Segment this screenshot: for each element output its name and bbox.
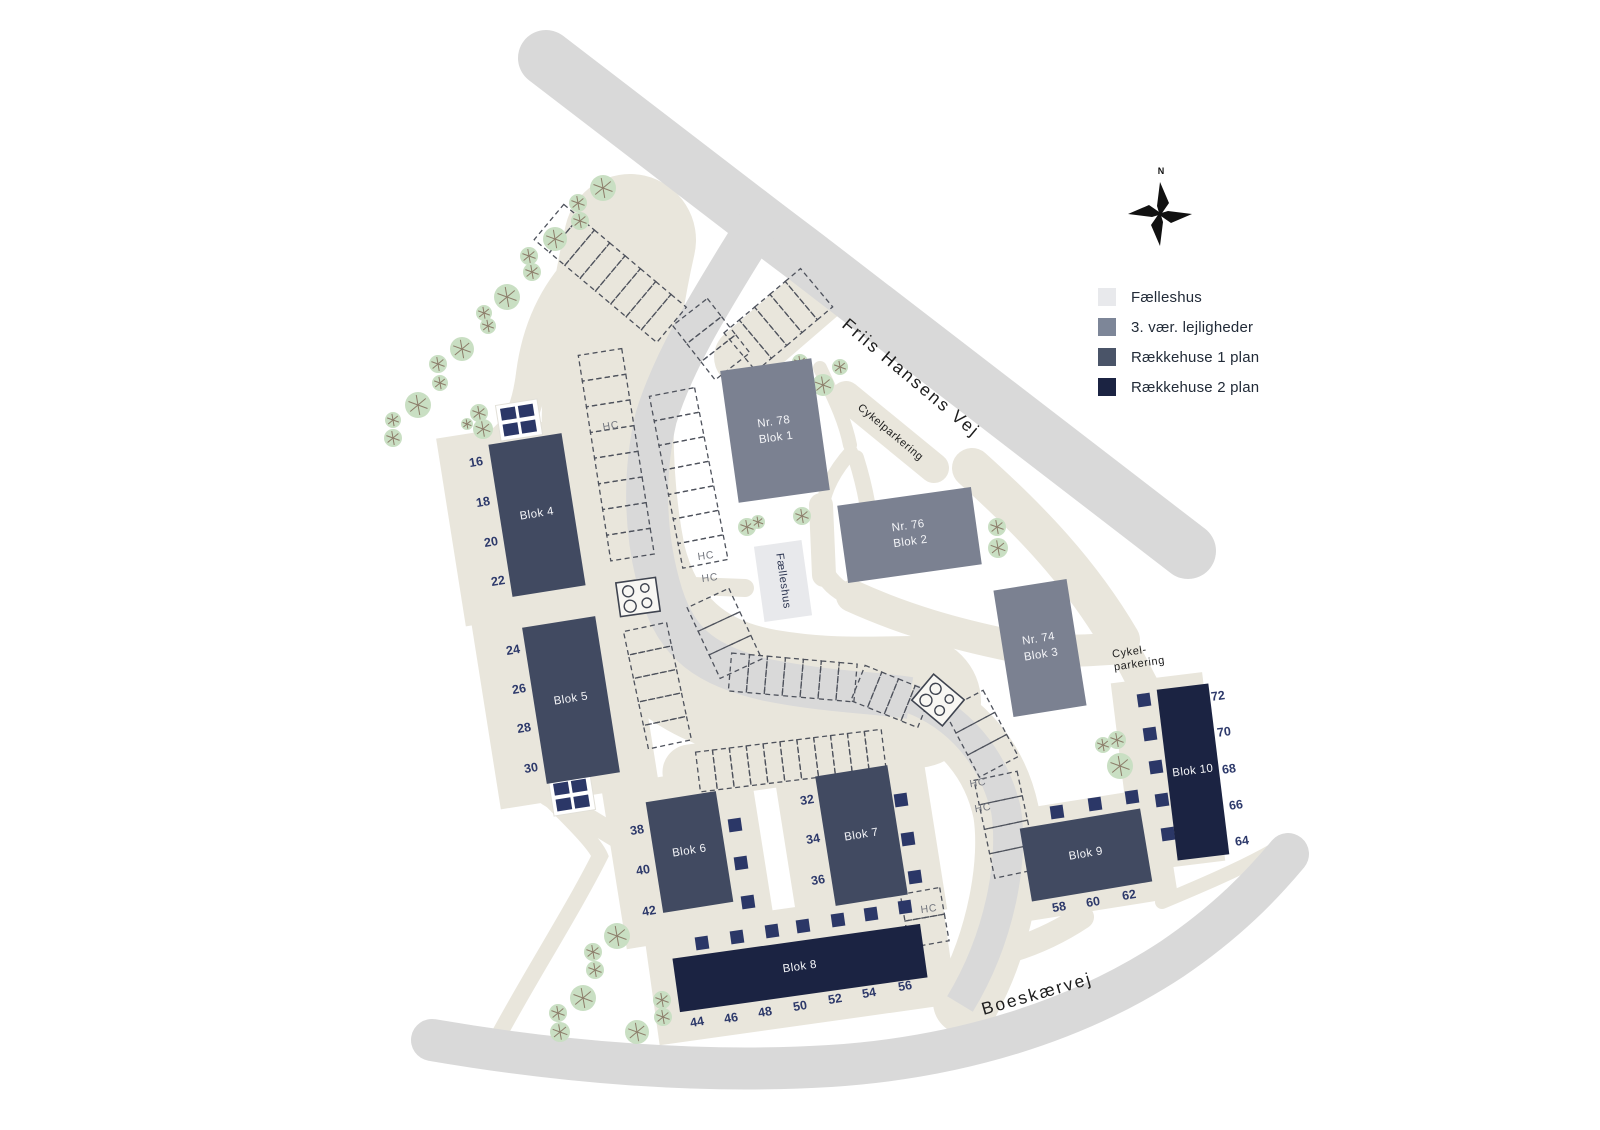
house-number: 64 [1234, 833, 1250, 849]
house-number: 32 [799, 792, 815, 808]
shed-icon [831, 913, 846, 928]
house-number: 50 [792, 998, 808, 1014]
building-label: Blok 6 [671, 842, 707, 863]
tree-icon [570, 985, 596, 1011]
legend-label: Rækkehuse 2 plan [1131, 379, 1259, 396]
north-label: N [1158, 166, 1165, 176]
building-label: Blok 9 [1068, 845, 1104, 866]
tree-icon [653, 991, 671, 1009]
shed-icon [1137, 693, 1152, 708]
legend-item-raekkehuse-2-plan: Rækkehuse 2 plan [1098, 378, 1259, 396]
shed-icon [741, 895, 756, 910]
shed-icon [1155, 793, 1170, 808]
house-number: 48 [757, 1004, 773, 1020]
building-label: Fælleshus [773, 552, 793, 609]
tree-icon [793, 507, 811, 525]
hc-parking-label: HC [697, 549, 715, 563]
house-number: 46 [723, 1010, 739, 1026]
shed-icon [695, 936, 710, 951]
house-number: 26 [511, 681, 527, 697]
building-label: Blok 8 [782, 958, 818, 978]
legend-label: Fælleshus [1131, 289, 1202, 306]
building-label: Nr. 78Blok 1 [756, 413, 794, 449]
house-number: 44 [689, 1014, 705, 1030]
shed-icon [901, 832, 916, 847]
house-number: 36 [810, 872, 826, 888]
house-number: 20 [483, 534, 499, 550]
tree-icon [450, 337, 474, 361]
shed-icon [730, 930, 745, 945]
shed-icon [898, 900, 913, 915]
building-label: Blok 10 [1172, 762, 1215, 782]
building-blok1: Nr. 78Blok 1 [720, 358, 830, 503]
tree-icon [569, 194, 587, 212]
tree-icon [751, 515, 765, 529]
shed-icon [728, 818, 743, 833]
tree-icon [520, 247, 538, 265]
house-number: 58 [1051, 899, 1067, 915]
house-number: 54 [861, 985, 877, 1001]
tree-icon [494, 284, 520, 310]
house-number: 28 [516, 720, 532, 736]
house-number: 18 [475, 494, 491, 510]
house-number: 30 [523, 760, 539, 776]
house-number: 60 [1085, 894, 1101, 910]
tree-icon [590, 175, 616, 201]
compass-icon [1128, 182, 1192, 246]
house-number: 34 [805, 831, 821, 847]
house-number: 72 [1210, 688, 1226, 704]
legend-swatch [1098, 378, 1116, 396]
house-number: 52 [827, 991, 843, 1007]
tree-icon [523, 263, 541, 281]
shed-icon [894, 793, 909, 808]
house-number: 68 [1221, 761, 1237, 777]
tree-icon [384, 429, 402, 447]
tree-icon [473, 419, 493, 439]
hc-parking-label: HC [920, 902, 938, 916]
tree-icon [550, 1022, 570, 1042]
tree-icon [832, 359, 848, 375]
tree-icon [405, 392, 431, 418]
building-label: Nr. 74Blok 3 [1021, 630, 1060, 666]
legend-item-faelleshus: Fælleshus [1098, 288, 1259, 306]
shed-icon [765, 924, 780, 939]
tree-icon [549, 1004, 567, 1022]
shed-icon [1125, 790, 1140, 805]
tree-icon [988, 518, 1006, 536]
shed-icon [908, 870, 923, 885]
tree-icon [604, 923, 630, 949]
tree-icon [480, 318, 496, 334]
hc-parking-label: HC [701, 571, 719, 585]
legend-swatch [1098, 348, 1116, 366]
house-number: 38 [629, 822, 645, 838]
shed-icon [1143, 727, 1158, 742]
house-number: 22 [490, 573, 506, 589]
shed-icon [734, 856, 749, 871]
tree-icon [1107, 753, 1133, 779]
legend-item-3vaer-lejligheder: 3. vær. lejligheder [1098, 318, 1259, 336]
tree-icon [571, 212, 589, 230]
legend-label: Rækkehuse 1 plan [1131, 349, 1259, 366]
site-plan: Nr. 78Blok 1 Nr. 76Blok 2 Nr. 74Blok 3 B… [0, 0, 1600, 1130]
tree-icon [385, 412, 401, 428]
tree-icon [432, 375, 448, 391]
shed-icon [796, 919, 811, 934]
tree-icon [625, 1020, 649, 1044]
tree-icon [586, 961, 604, 979]
tree-icon [461, 418, 473, 430]
house-number: 62 [1121, 887, 1137, 903]
legend: Fælleshus 3. vær. lejligheder Rækkehuse … [1098, 288, 1259, 408]
house-number: 70 [1216, 724, 1232, 740]
shed-icon [1050, 805, 1065, 820]
tree-icon [988, 538, 1008, 558]
tree-icon [429, 355, 447, 373]
legend-swatch [1098, 288, 1116, 306]
house-number: 42 [641, 903, 657, 919]
house-number: 66 [1228, 797, 1244, 813]
house-number: 40 [635, 862, 651, 878]
building-label: Blok 7 [843, 825, 879, 846]
tree-icon [1108, 731, 1126, 749]
waste-station-icon [616, 577, 660, 616]
building-faelleshus: Fælleshus [754, 540, 812, 622]
shed-group-icon [495, 399, 542, 441]
house-number: 16 [468, 454, 484, 470]
shed-icon [1088, 797, 1103, 812]
tree-icon [584, 943, 602, 961]
shed-icon [864, 907, 879, 922]
tree-icon [543, 227, 567, 251]
shed-icon [1149, 760, 1164, 775]
tree-icon [654, 1008, 672, 1026]
building-label: Blok 4 [519, 505, 555, 526]
legend-swatch [1098, 318, 1116, 336]
building-label: Nr. 76Blok 2 [890, 517, 928, 553]
building-label: Blok 5 [553, 690, 589, 711]
house-number: 24 [505, 642, 521, 658]
legend-item-raekkehuse-1-plan: Rækkehuse 1 plan [1098, 348, 1259, 366]
house-number: 56 [897, 978, 913, 994]
legend-label: 3. vær. lejligheder [1131, 319, 1253, 336]
